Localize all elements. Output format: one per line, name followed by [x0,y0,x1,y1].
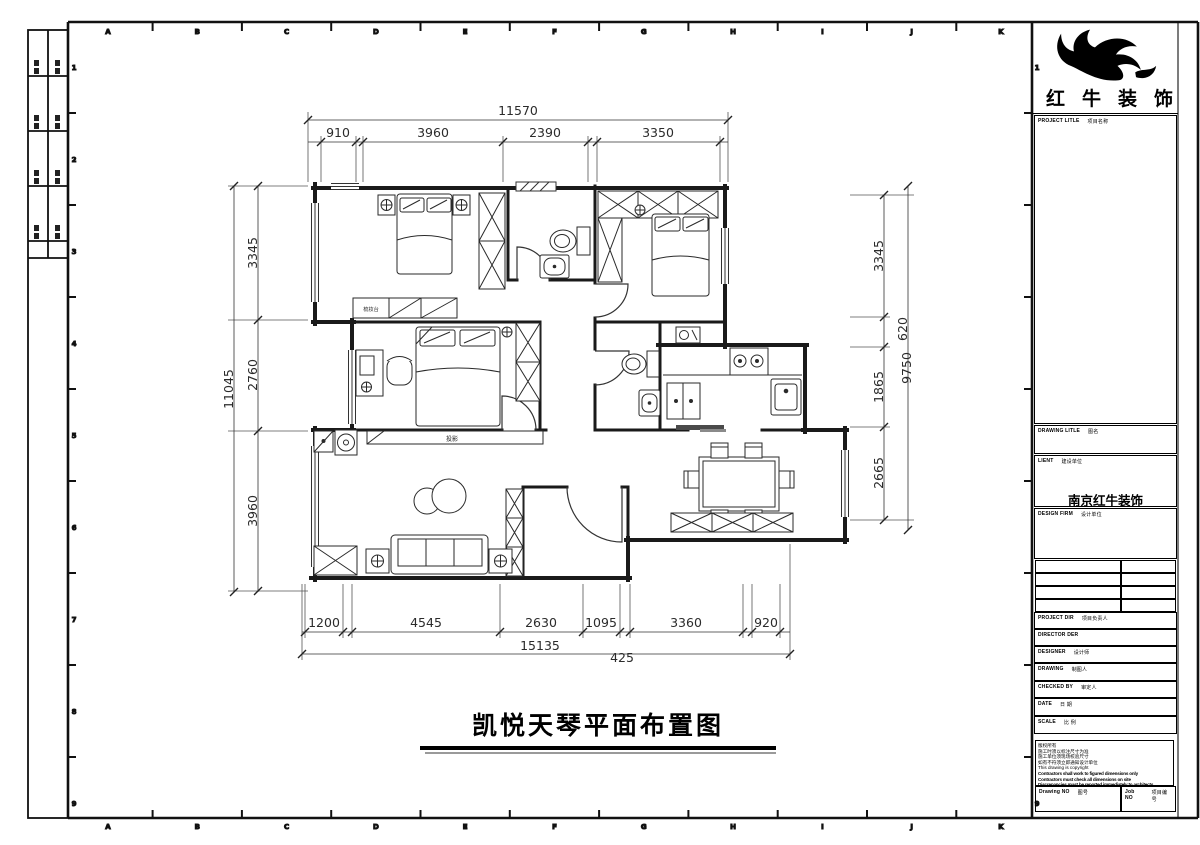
job-no-en: Job NO [1125,789,1144,803]
project-title-cn: 项目名称 [1088,118,1109,125]
grid-number-left-8: 8 [72,708,77,716]
door-entry [567,487,622,542]
project-title-en: PROJECT LITLE [1038,118,1080,125]
grid-letter-top-E: E [463,28,468,36]
director-en: DIRECTOR DER [1038,632,1078,638]
checked-by-en: CHECKED BY [1038,684,1073,691]
designer-cn: 设计师 [1074,649,1090,656]
checked-by-cn: 审定人 [1081,684,1097,691]
grid-number-left-6: 6 [72,524,77,532]
copyright-block: 版权所有 施工时须以标注尺寸为准 施工单位须现场校验尺寸 如有不符须立即通知设计… [1035,740,1174,786]
dim-right-seg-0: 3345 [871,240,886,272]
dim-bottom-seg-0: 1200 [308,615,340,630]
row-checked-by: CHECKED BY审定人 [1034,681,1177,698]
bedroom-2 [356,323,540,426]
drawing-title: 凯悦天琴平面布置图 [420,706,776,754]
grid-letter-bottom-A: A [105,823,111,831]
row-scale: SCALE比 例 [1034,716,1177,734]
grid-letter-top-B: B [195,28,200,36]
grid-number-left-5: 5 [72,432,77,440]
revision-strip [28,30,68,818]
section-drawing-title: DRAWING LITLE图名 [1034,425,1177,454]
dim-right-seg-1: 1865 [871,371,886,403]
dim-right-total-9750: 9750 [899,352,914,384]
dim-top-seg-1: 3960 [417,125,449,140]
wardrobe-1 [479,193,505,289]
grid-letter-bottom-H: H [730,823,736,831]
date-cn: 日 期 [1060,701,1072,708]
bull-logo-icon [1033,24,1173,82]
dim-bottom-seg-3: 1095 [585,615,617,630]
project-dir-cn: 项目负责人 [1082,615,1108,622]
title-block: 红牛装饰 PROJECT LITLE项目名称 DRAWING LITLE图名 L… [1033,22,1178,818]
grid-letter-bottom-E: E [463,823,468,831]
company-logo [1033,24,1178,84]
grid-letter-bottom-D: D [373,823,379,831]
grid-letter-bottom-J: J [909,823,913,831]
drawing-no-en: Drawing NO [1039,789,1070,796]
dresser-label: 梳妆台 [363,305,379,313]
grid-number-left-1: 1 [72,64,77,72]
section-project-title: PROJECT LITLE项目名称 [1034,115,1177,424]
grid-letter-top-K: K [998,28,1004,36]
grid-letter-top-D: D [373,28,379,36]
utility-niche [676,327,700,343]
bedroom-3 [598,191,718,296]
title-underline [420,746,776,750]
grid-number-left-3: 3 [72,248,77,256]
dim-top-seg-3: 3350 [642,125,674,140]
bathroom-1 [540,227,590,278]
dim-right-total-620: 620 [895,317,910,341]
wardrobe-2 [516,323,540,401]
dim-left-total: 11045 [221,369,236,409]
grid-letter-top-F: F [552,28,557,36]
grid-number-left-7: 7 [72,616,77,624]
wall-hatch [516,182,556,191]
grid-letter-bottom-K: K [998,823,1004,831]
grid-letter-top-C: C [284,28,289,36]
dim-left-seg-0: 3345 [245,237,260,269]
door-bedroom-3 [595,284,628,317]
drawing-title-cn: 图名 [1088,428,1098,435]
desk-chair [387,358,412,385]
dim-bottom-seg-2: 2630 [525,615,557,630]
grid-number-left-4: 4 [72,340,77,348]
projection-label: 投影 [446,435,458,443]
row-project-dir: PROJECT DIR项目负责人 [1034,612,1177,629]
toilet-1 [577,227,590,255]
cell-job-no: Job NO项目编号 [1121,786,1176,812]
dining-room [671,443,794,532]
design-firm-cn: 设计单位 [1081,511,1102,518]
dim-bottom-total: 15135 [520,638,560,653]
dim-left-seg-2: 3960 [245,495,260,527]
date-en: DATE [1038,701,1052,708]
drawing-cn: 制图人 [1072,666,1088,673]
drawing-no-cn: 图号 [1078,789,1088,796]
grid-letters-top: ABCDEFGHIJK [105,23,1004,36]
grid-letter-bottom-C: C [284,823,289,831]
dim-left-seg-1: 2760 [245,359,260,391]
bathroom-2 [622,351,660,416]
revision-strip-glyphs [34,60,60,239]
client-cn: 建设单位 [1061,458,1082,465]
sideboard [671,513,793,532]
grid-letters-bottom: ABCDEFGHIJK [105,810,1004,831]
grid-numbers-left: 123456789 [69,64,77,808]
dim-top-seg-2: 2390 [529,125,561,140]
project-dir-en: PROJECT DIR [1038,615,1074,622]
drawing-en: DRAWING [1038,666,1064,673]
job-no-cn: 项目编号 [1152,789,1172,803]
toilet-2 [647,351,659,377]
dim-bottom-seg-5: 920 [754,615,778,630]
grid-number-left-2: 2 [72,156,77,164]
row-drawing: DRAWING制图人 [1034,663,1177,681]
grid-letter-bottom-F: F [552,823,557,831]
kitchen [663,348,802,432]
grid-letter-bottom-I: I [821,823,824,831]
dim-bottom-seg-1: 4545 [410,615,442,630]
bedroom-1 [353,193,505,318]
row-designer: DESIGNER设计师 [1034,646,1177,663]
design-firm-en: DESIGN FIRM [1038,511,1073,518]
dim-right-seg-2: 2665 [871,457,886,489]
row-director: DIRECTOR DER [1034,629,1177,646]
client-en: LIENT [1038,458,1053,465]
grid-letter-top-H: H [730,28,736,36]
section-design-firm: DESIGN FIRM设计单位 [1034,508,1177,559]
designer-en: DESIGNER [1038,649,1066,656]
dim-bottom-extra: 425 [610,650,634,665]
grid-letter-bottom-G: G [641,823,647,831]
scale-cn: 比 例 [1064,719,1076,726]
blueprint-page: ABCDEFGHIJK ABCDEFGHIJK 123456789 123456… [0,0,1200,845]
client-name: 南京红牛装饰 [1033,490,1178,509]
grid-letter-top-I: I [821,28,824,36]
dim-bottom-seg-4: 3360 [670,615,702,630]
row-date: DATE日 期 [1034,698,1177,716]
drawing-title-text: 凯悦天琴平面布置图 [420,706,776,742]
dim-top-total: 11570 [498,103,538,118]
title-underline-shadow [425,752,776,754]
grid-number-left-9: 9 [72,800,77,808]
drawing-title-en: DRAWING LITLE [1038,428,1080,435]
grid-letter-top-G: G [641,28,647,36]
scale-en: SCALE [1038,719,1056,726]
grid-letter-top-A: A [105,28,111,36]
grid-letter-bottom-B: B [195,823,200,831]
dim-top-seg-0: 910 [326,125,350,140]
grid-letter-top-J: J [909,28,913,36]
cell-drawing-no: Drawing NO图号 [1035,786,1121,812]
brand-name: 红牛装饰 [1033,84,1178,114]
